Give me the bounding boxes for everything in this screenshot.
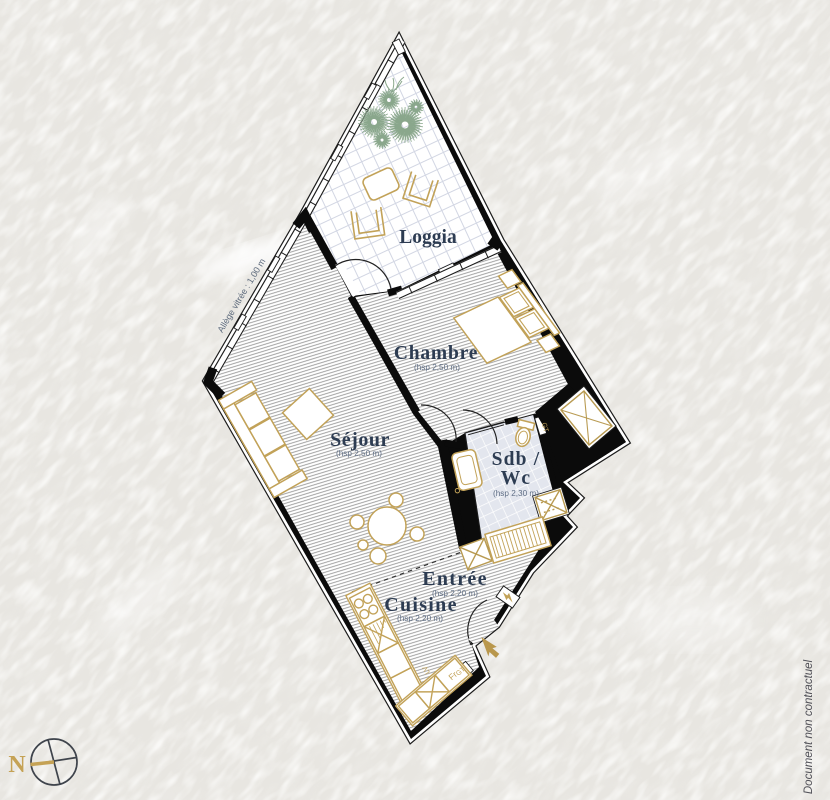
svg-text:(hsp 2,30 m): (hsp 2,30 m) <box>493 489 539 498</box>
svg-text:(hsp 2,50 m): (hsp 2,50 m) <box>414 363 460 372</box>
svg-text:(hsp 2,50 m): (hsp 2,50 m) <box>336 449 382 458</box>
svg-text:Wc: Wc <box>501 468 532 489</box>
svg-text:Entrée: Entrée <box>422 568 488 590</box>
svg-text:Séjour: Séjour <box>330 429 390 451</box>
svg-text:Sdb /: Sdb / <box>492 449 541 470</box>
svg-text:Loggia: Loggia <box>399 227 457 248</box>
svg-text:N: N <box>8 752 26 778</box>
svg-text:(hsp 2,20 m): (hsp 2,20 m) <box>432 589 478 598</box>
svg-text:Chambre: Chambre <box>394 343 478 364</box>
svg-text:(hsp 2,20 m): (hsp 2,20 m) <box>397 614 443 623</box>
svg-text:Document non contractuel: Document non contractuel <box>803 659 815 794</box>
